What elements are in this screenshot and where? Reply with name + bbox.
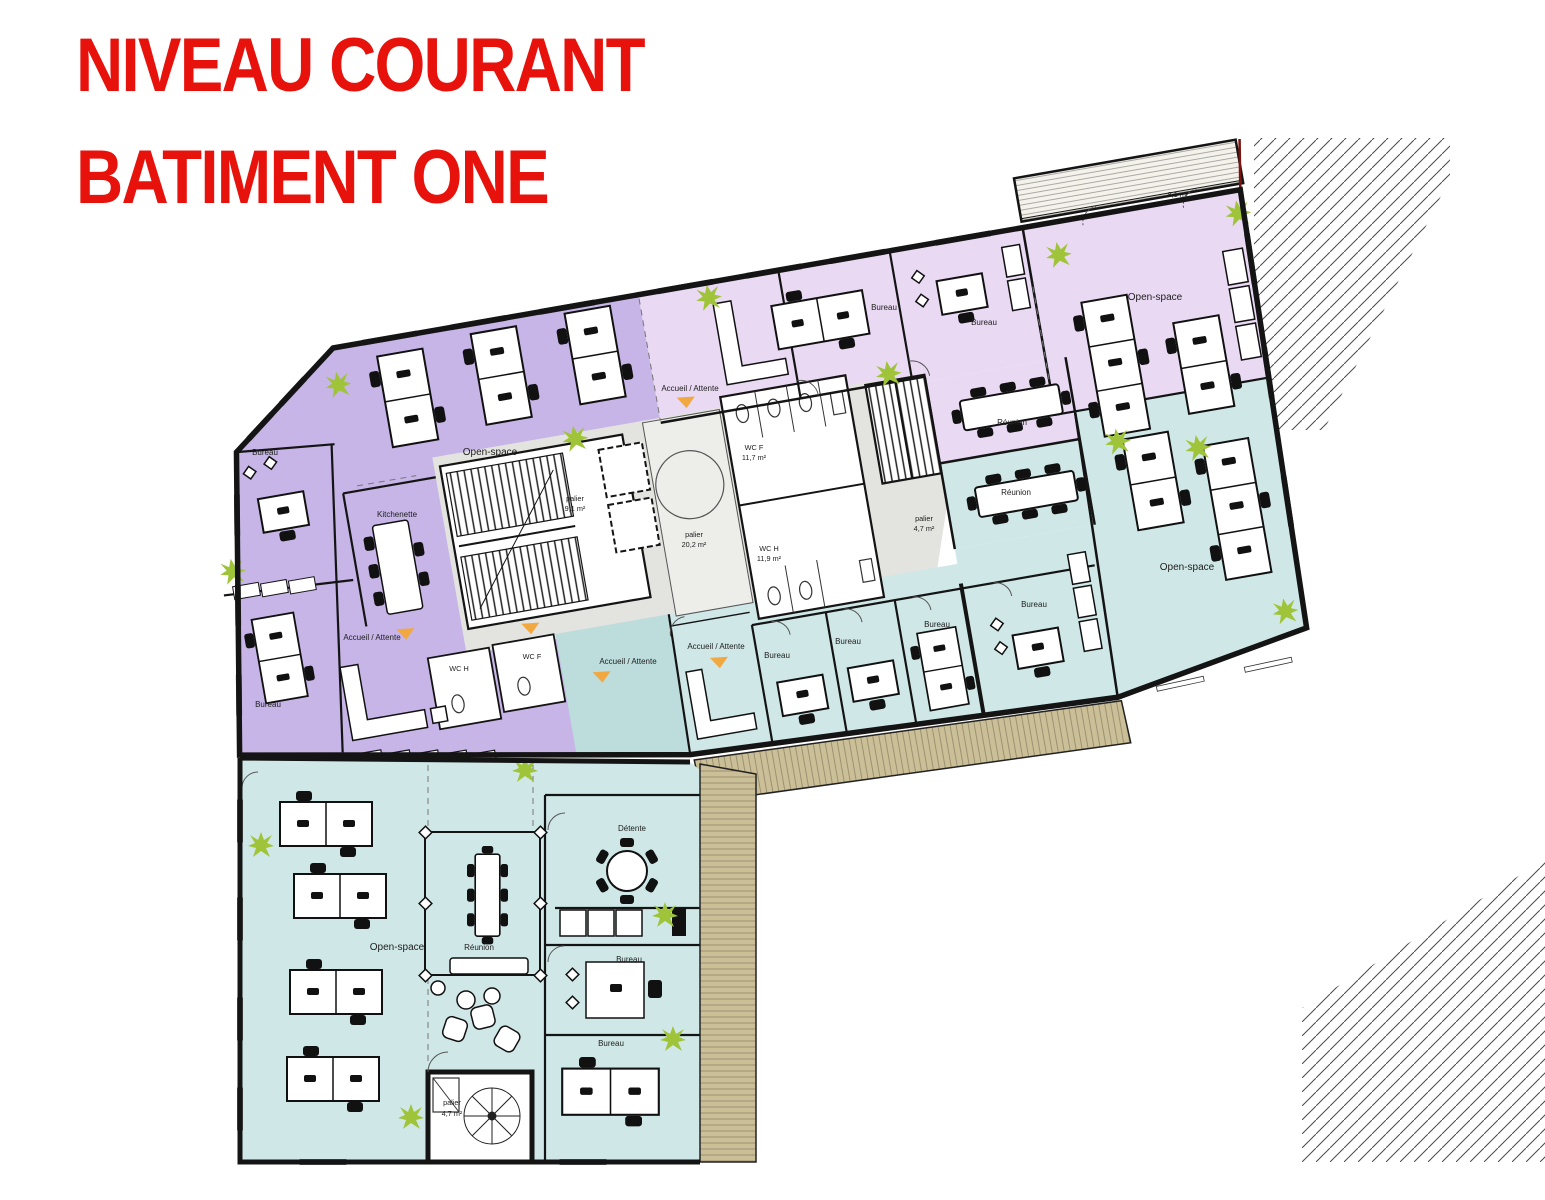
label-palier: palier	[566, 494, 584, 503]
label-bureau: Bureau	[971, 318, 997, 327]
label-wcf-area: 11,7 m²	[742, 453, 767, 462]
label-openspace: Open-space	[370, 942, 425, 953]
label-wcf-small: WC F	[523, 652, 542, 661]
terrace-lower-strip	[700, 764, 756, 1162]
label-bureau: Bureau	[616, 955, 642, 964]
label-palier: palier	[685, 530, 703, 539]
floorplan-page: { "title": { "line1": "NIVEAU COURANT", …	[0, 0, 1545, 1200]
label-wcf: WC F	[745, 443, 764, 452]
floorplan-svg: Bureau Open-space Kitchenette Accueil / …	[0, 0, 1545, 1200]
neighbor-hatch-bottom	[1302, 860, 1545, 1162]
label-reunion: Réunion	[464, 943, 494, 952]
label-openspace: Open-space	[1160, 562, 1215, 573]
label-bureau: Bureau	[764, 651, 790, 660]
label-bureau: Bureau	[255, 700, 281, 709]
label-accueil: Accueil / Attente	[661, 384, 719, 393]
label-bureau: Bureau	[835, 637, 861, 646]
label-openspace: Open-space	[463, 447, 518, 458]
label-kitchenette: Kitchenette	[377, 510, 418, 519]
label-accueil: Accueil / Attente	[687, 642, 745, 651]
label-bureau: Bureau	[871, 303, 897, 312]
label-palier: palier	[915, 514, 933, 523]
label-palier-area: 4,7 m²	[442, 1109, 463, 1118]
lower-wing	[238, 757, 757, 1165]
label-bureau: Bureau	[252, 448, 278, 457]
label-palier: palier	[443, 1098, 461, 1107]
label-palier-area: 4,7 m²	[914, 524, 935, 533]
label-reunion: Réunion	[1001, 488, 1031, 497]
label-wch-small: WC H	[449, 664, 468, 673]
label-accueil: Accueil / Attente	[599, 657, 657, 666]
label-wch-area: 11,9 m²	[757, 554, 782, 563]
label-bureau: Bureau	[1021, 600, 1047, 609]
label-accueil: Accueil / Attente	[343, 633, 401, 642]
label-palier-area: 9,1 m²	[565, 504, 586, 513]
label-reunion: Réunion	[997, 418, 1027, 427]
neighbor-hatch-top	[1254, 138, 1450, 430]
label-detente: Détente	[618, 824, 647, 833]
label-wch: WC H	[759, 544, 778, 553]
label-bureau: Bureau	[924, 620, 950, 629]
label-palier-area: 20,2 m²	[682, 540, 707, 549]
label-bureau: Bureau	[598, 1039, 624, 1048]
label-openspace: Open-space	[1128, 292, 1183, 303]
label-balcony-area: 8,1 m²	[1168, 190, 1189, 199]
